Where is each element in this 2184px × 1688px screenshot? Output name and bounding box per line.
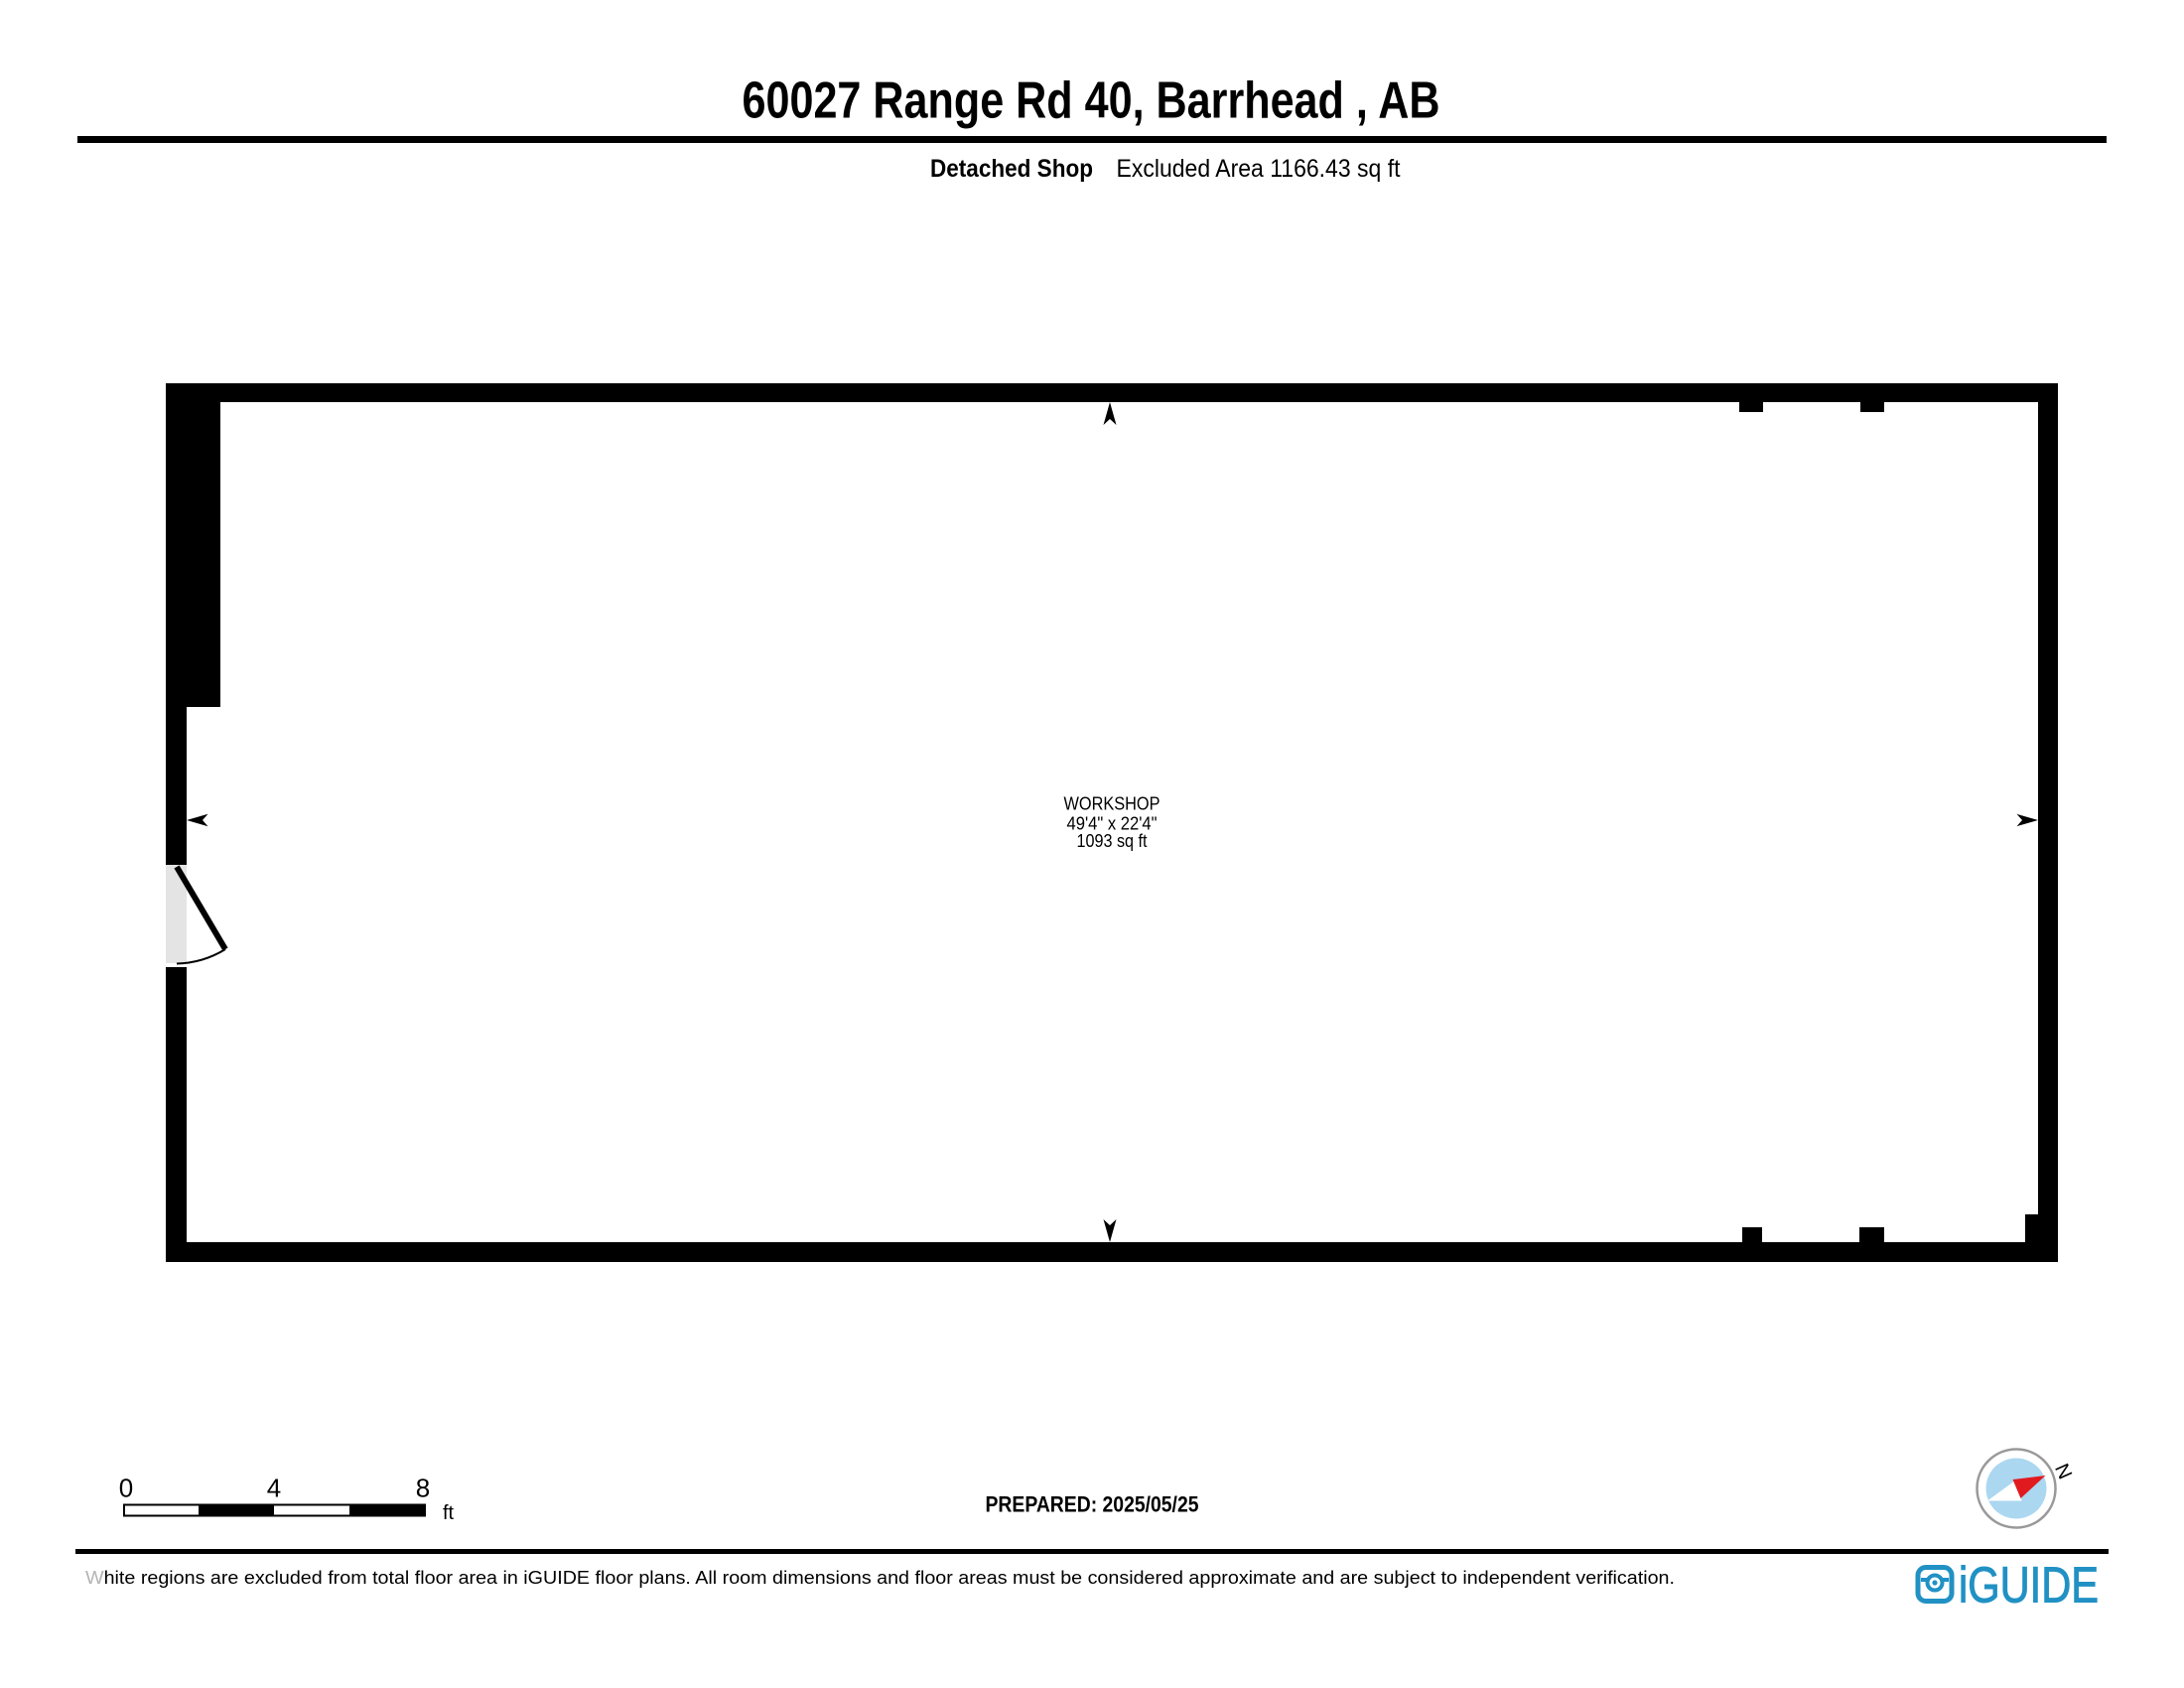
svg-text:8: 8: [416, 1474, 430, 1503]
svg-text:60027 Range Rd 40, Barrhead ,: 60027 Range Rd 40, Barrhead , AB: [743, 72, 1440, 130]
svg-text:1093 sq ft: 1093 sq ft: [1077, 830, 1148, 851]
svg-text:iGUIDE: iGUIDE: [1959, 1557, 2099, 1614]
svg-text:White regions are excluded fro: White regions are excluded from total fl…: [85, 1567, 1675, 1588]
svg-text:PREPARED: 2025/05/25: PREPARED: 2025/05/25: [986, 1492, 1199, 1517]
svg-text:ft: ft: [443, 1502, 455, 1524]
svg-text:WORKSHOP: WORKSHOP: [1064, 793, 1160, 814]
svg-text:Detached Shop: Detached Shop: [930, 155, 1093, 183]
svg-text:0: 0: [119, 1474, 133, 1503]
svg-text:4: 4: [267, 1474, 281, 1503]
svg-text:Excluded Area 1166.43 sq ft: Excluded Area 1166.43 sq ft: [1117, 155, 1401, 183]
